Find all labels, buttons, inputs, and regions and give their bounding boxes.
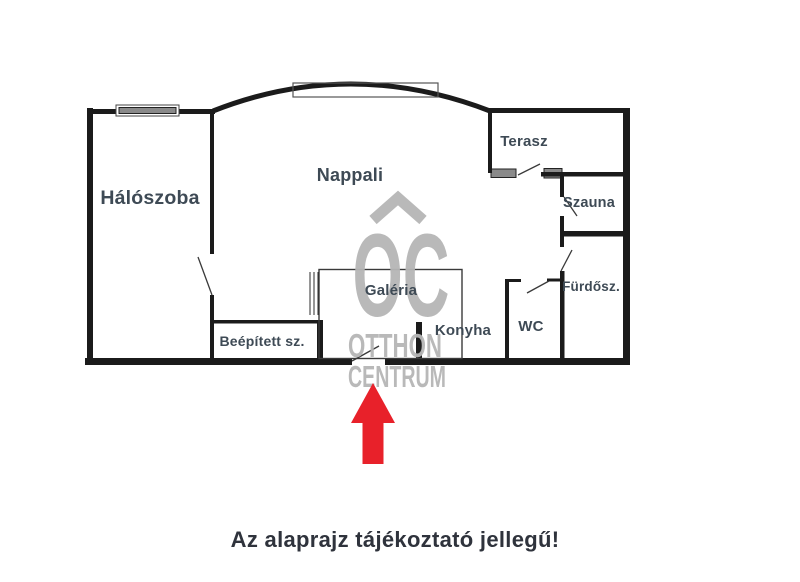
door-wc xyxy=(527,281,549,293)
room-label-beepitett: Beépített sz. xyxy=(219,333,304,349)
gallery-ladder xyxy=(310,272,318,315)
wall-wc-top-right xyxy=(547,279,561,282)
wall-szauna-left-upper xyxy=(560,176,564,197)
wall-szauna-bottom xyxy=(560,231,630,237)
wall-top-right-terasz xyxy=(488,108,630,113)
wall-bathroom-stub xyxy=(560,236,564,247)
room-label-terasz: Terasz xyxy=(500,133,548,150)
terasz-window-left xyxy=(491,169,516,178)
windows xyxy=(116,83,562,178)
room-label-wc: WC xyxy=(518,318,543,335)
disclaimer-text: Az alaprajz tájékoztató jellegű! xyxy=(231,527,560,552)
room-label-szauna: Szauna xyxy=(563,195,616,211)
wall-closet-right xyxy=(317,320,323,360)
wall-bedroom-upper xyxy=(210,111,214,254)
watermark-centrum: CENTRUM xyxy=(348,359,446,394)
door-terasz xyxy=(518,164,540,175)
door-bedroom xyxy=(198,257,212,295)
floorplan-canvas: OC OTTHON CENTRUM Hálószoba Nappali Tera… xyxy=(0,0,800,582)
wall-outer-bottom-left xyxy=(85,358,352,365)
wall-szauna-left-lower xyxy=(560,216,564,233)
wall-outer-left xyxy=(87,108,93,365)
room-label-galeria: Galéria xyxy=(365,282,418,299)
entrance-arrow-icon xyxy=(351,383,395,464)
wall-wc-left xyxy=(505,279,509,359)
wall-closet-top xyxy=(210,320,320,324)
wall-terasz-left xyxy=(488,111,492,173)
room-label-furdoszoba: Fürdősz. xyxy=(562,279,620,294)
wall-terasz-bottom xyxy=(541,172,630,177)
bedroom-window-sill xyxy=(119,108,176,114)
door-bathroom xyxy=(561,250,572,271)
room-label-nappali: Nappali xyxy=(317,165,383,185)
wall-bedroom-lower xyxy=(210,295,214,360)
floorplan-page: OC OTTHON CENTRUM Hálószoba Nappali Tera… xyxy=(0,0,800,582)
room-label-konyha: Konyha xyxy=(435,322,492,339)
room-label-haloszoba: Hálószoba xyxy=(100,187,199,209)
